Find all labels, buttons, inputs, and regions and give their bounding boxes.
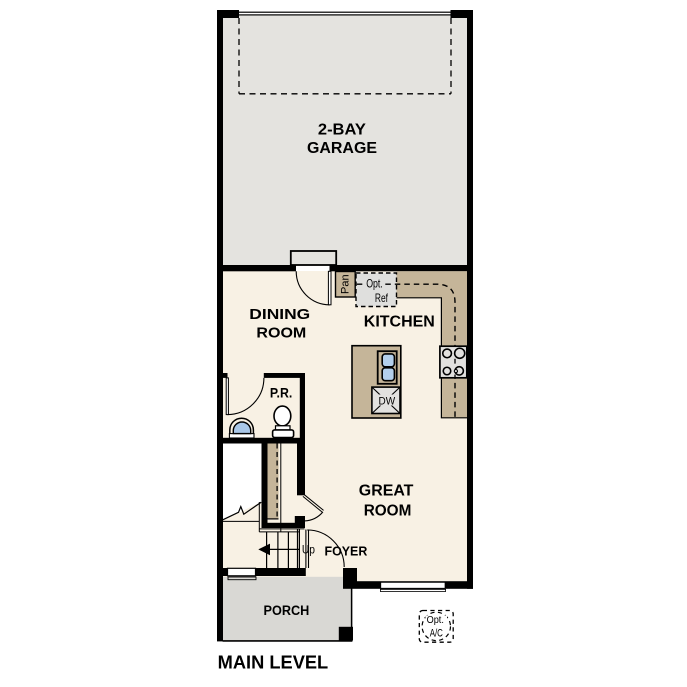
svg-text:KITCHEN: KITCHEN: [364, 314, 435, 331]
svg-text:Pan: Pan: [339, 274, 351, 294]
svg-text:MAIN LEVEL: MAIN LEVEL: [218, 653, 329, 673]
svg-text:Opt.: Opt.: [427, 614, 444, 626]
svg-text:DINING: DINING: [249, 306, 310, 323]
svg-text:ROOM: ROOM: [364, 503, 412, 520]
svg-text:P.R.: P.R.: [270, 384, 292, 400]
svg-text:GARAGE: GARAGE: [307, 140, 377, 157]
svg-text:Ref: Ref: [375, 291, 389, 305]
svg-text:Opt.: Opt.: [366, 277, 383, 291]
svg-text:DW: DW: [379, 395, 396, 407]
svg-text:PORCH: PORCH: [264, 603, 310, 618]
svg-text:A/C: A/C: [430, 627, 443, 639]
svg-text:GREAT: GREAT: [359, 483, 414, 500]
svg-text:ROOM: ROOM: [256, 324, 306, 341]
svg-text:2-BAY: 2-BAY: [318, 122, 366, 139]
svg-text:FOYER: FOYER: [325, 545, 368, 559]
